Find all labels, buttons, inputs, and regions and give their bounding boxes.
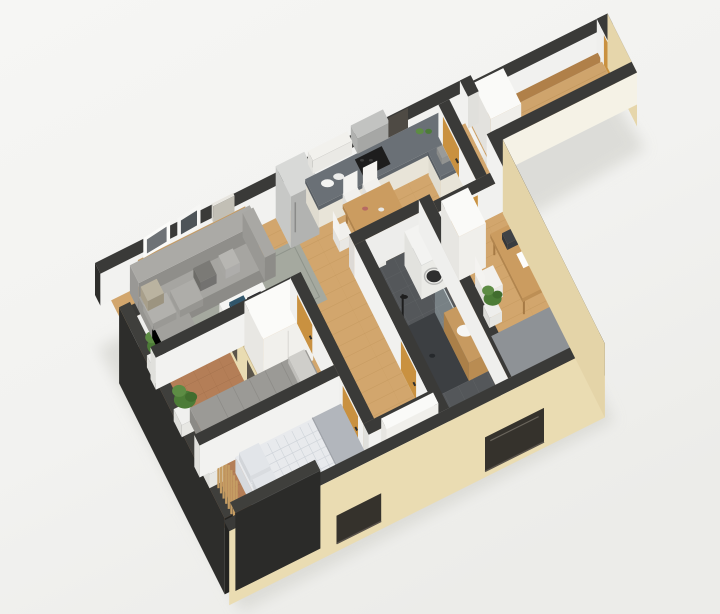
kitchen-sink-plate xyxy=(321,179,334,187)
cooktop-knob xyxy=(360,159,364,162)
shower-head xyxy=(400,295,408,299)
balcony-plant xyxy=(185,392,197,402)
study-plant xyxy=(482,286,494,296)
dining-table-bowl xyxy=(378,208,384,212)
balcony-plant xyxy=(172,385,186,397)
floor-plan-stage xyxy=(0,0,720,614)
study-plant xyxy=(493,291,503,299)
apartment-3d-floor-plan xyxy=(0,0,720,614)
kitchen-sink-plate xyxy=(333,173,344,180)
shower-drain xyxy=(429,354,435,358)
cooktop-knob xyxy=(369,159,373,162)
dining-table-bowl xyxy=(362,207,368,211)
kitchen-herb xyxy=(416,128,424,134)
kitchen-herb xyxy=(425,129,432,134)
